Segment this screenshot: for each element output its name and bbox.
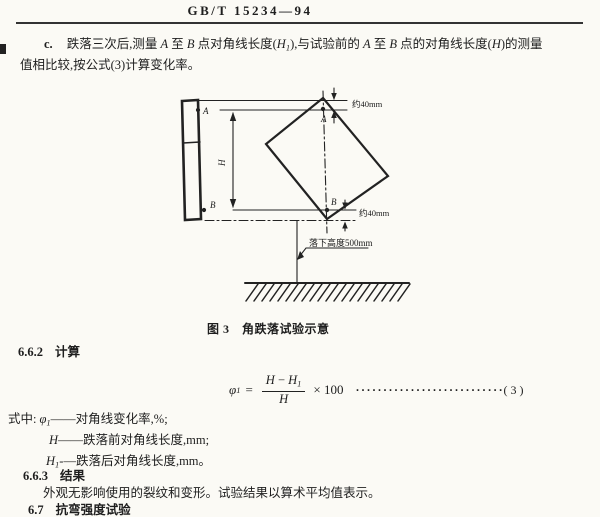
scan-edge-mark: [0, 44, 6, 54]
top-gap-arrowhead-upper: [331, 93, 337, 100]
formula-3: φ1 = H − H1 H × 100 ····················…: [229, 375, 524, 405]
result-paragraph: 外观无影响使用的裂纹和变形。试验结果以算术平均值表示。: [43, 486, 381, 500]
bottom-gap-arrowhead-lower: [342, 222, 348, 229]
point-a-label: A: [320, 114, 327, 124]
section-heading-663: 6.6.3结果: [23, 469, 85, 483]
section-heading-662: 6.6.2计算: [18, 345, 80, 359]
point-b-side-marker: [202, 208, 206, 212]
h-arrowhead-top: [230, 112, 236, 121]
formula-number: ( 3 ): [504, 383, 524, 397]
point-b-marker: [325, 208, 329, 212]
dot-leader: ········································: [356, 383, 504, 397]
point-b-side-label: B: [210, 200, 216, 210]
point-a-side-marker: [196, 108, 200, 112]
drop-height-label: 落下高度500mm: [309, 237, 373, 248]
scanned-standard-page: { "header": { "standard_number": "GB/T 1…: [0, 0, 600, 511]
point-b-label: B: [331, 197, 337, 207]
side-view-box-divider: [183, 142, 200, 143]
h-arrowhead-bottom: [230, 199, 236, 208]
where-line-h: H——跌落前对角线长度,mm;: [49, 433, 209, 447]
gap-top-label: 约40mm: [352, 99, 383, 109]
formula-lhs: φ: [229, 383, 236, 397]
drop-height-leader: [299, 248, 368, 257]
fraction: H − H1 H: [262, 374, 306, 407]
diamond-box: [266, 98, 388, 219]
h-dimension-label: H: [217, 159, 227, 167]
figure-caption: 图 3 角跌落试验示意: [207, 322, 330, 336]
gap-bottom-label: 约40mm: [359, 208, 390, 218]
point-a-side-label: A: [202, 106, 209, 116]
side-view-box: [182, 100, 201, 220]
where-line-phi: 式中:φ1——对角线变化率,%;: [8, 412, 168, 430]
ground-hatch: [246, 284, 410, 301]
point-a-marker: [321, 107, 325, 111]
section-heading-67-clipped: 6.7抗弯强度试验: [28, 503, 131, 517]
